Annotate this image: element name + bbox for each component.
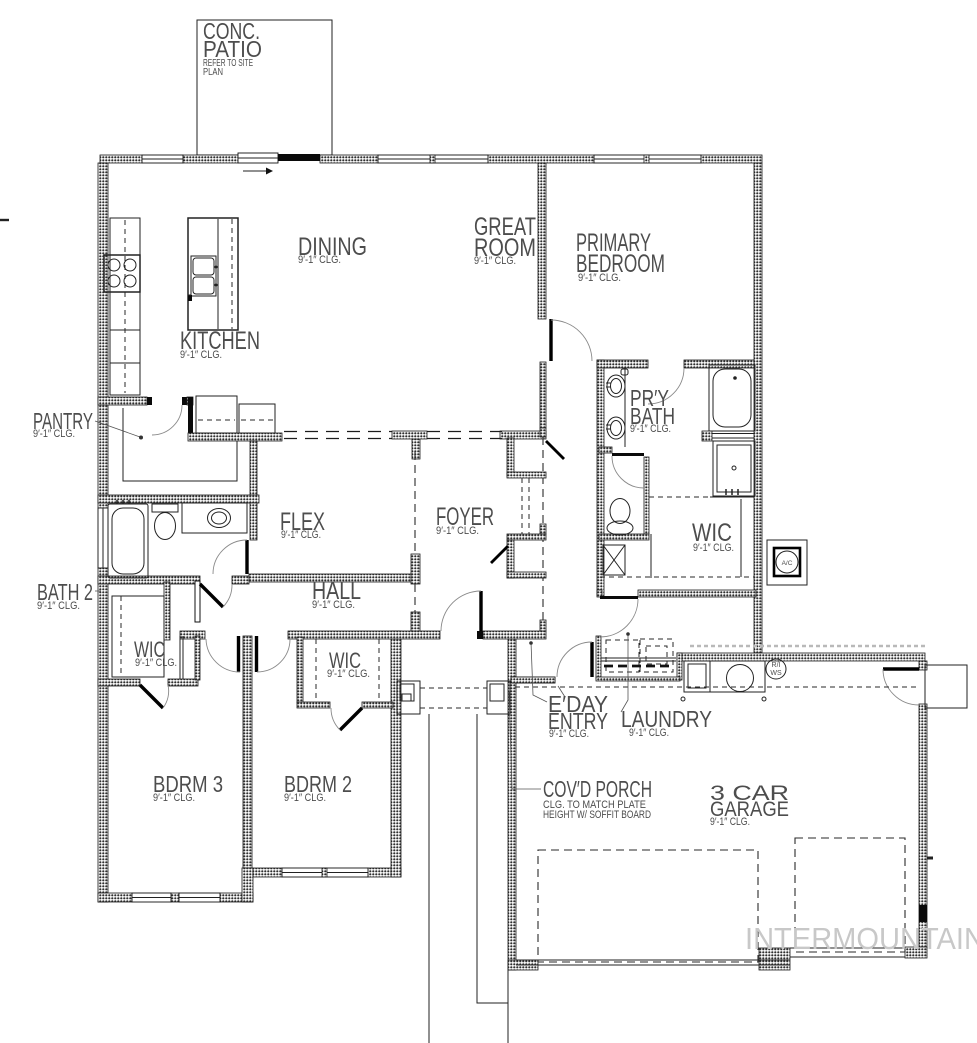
svg-text:PLAN: PLAN (203, 67, 223, 78)
svg-text:HEIGHT W/ SOFFIT BOARD: HEIGHT W/ SOFFIT BOARD (543, 809, 651, 821)
svg-text:9′-1″ CLG.: 9′-1″ CLG. (630, 423, 671, 435)
svg-text:9′-1″ CLG.: 9′-1″ CLG. (33, 428, 75, 440)
svg-text:9′-1″ CLG.: 9′-1″ CLG. (710, 816, 750, 828)
svg-text:9′-1″ CLG.: 9′-1″ CLG. (37, 600, 80, 612)
svg-text:9′-1″ CLG.: 9′-1″ CLG. (327, 668, 370, 680)
svg-text:9′-1″ CLG.: 9′-1″ CLG. (474, 255, 516, 267)
svg-text:9′-1″ CLG.: 9′-1″ CLG. (180, 349, 222, 361)
svg-text:9′-1″ CLG.: 9′-1″ CLG. (153, 792, 195, 804)
svg-text:A/C: A/C (782, 560, 793, 567)
svg-text:9′-1″ CLG.: 9′-1″ CLG. (298, 254, 341, 266)
svg-text:9′-1″ CLG.: 9′-1″ CLG. (281, 529, 321, 541)
svg-text:9′-1″ CLG.: 9′-1″ CLG. (629, 727, 669, 739)
svg-text:9′-1″ CLG.: 9′-1″ CLG. (312, 599, 355, 611)
svg-text:9′-1″ CLG.: 9′-1″ CLG. (549, 728, 589, 740)
svg-text:9′-1″ CLG.: 9′-1″ CLG. (135, 657, 177, 669)
svg-text:INTERMOUNTAIN: INTERMOUNTAIN (745, 921, 977, 956)
svg-text:9′-1″ CLG.: 9′-1″ CLG. (436, 525, 479, 537)
svg-text:9′-1″ CLG.: 9′-1″ CLG. (693, 542, 734, 554)
svg-text:R/I: R/I (772, 662, 781, 669)
svg-text:9′-1″ CLG.: 9′-1″ CLG. (284, 792, 326, 804)
svg-text:WS: WS (770, 670, 782, 677)
svg-text:9′-1″ CLG.: 9′-1″ CLG. (578, 272, 621, 284)
